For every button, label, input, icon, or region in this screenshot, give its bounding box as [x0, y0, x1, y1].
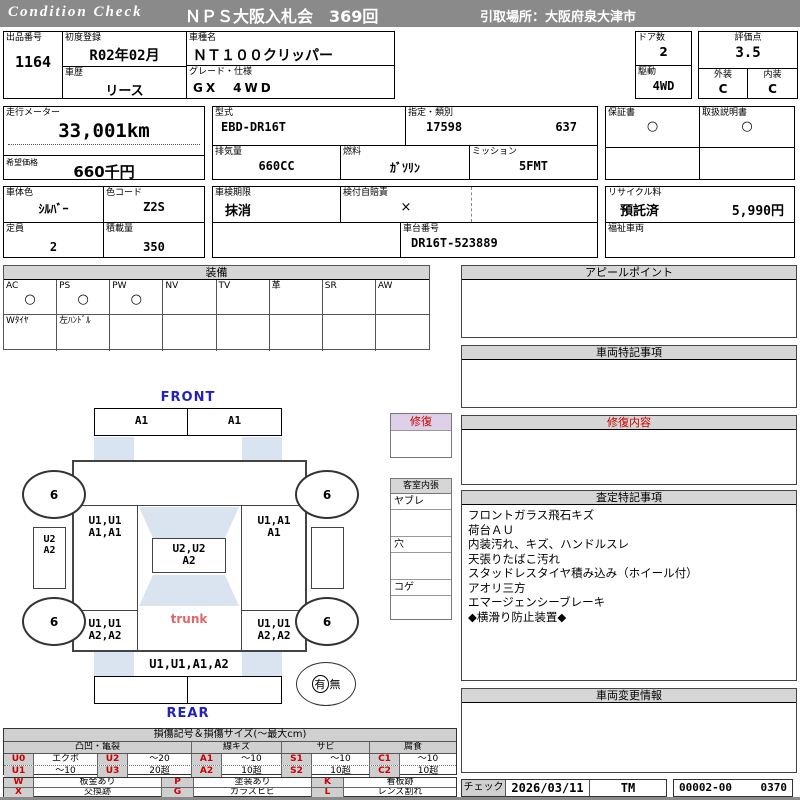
- class-values: 17598 637: [406, 120, 597, 134]
- right-front-panel-code-2: A1: [242, 527, 306, 539]
- field-lot-number: 出品番号 1164: [4, 32, 63, 98]
- equipment-extra-lhd: 左ﾊﾝﾄﾞﾙ: [57, 315, 110, 351]
- check-date-value: 2026/03/11: [506, 780, 590, 796]
- legend-desc-u2: ～20: [128, 754, 192, 765]
- engine-block: 型式 EBD-DR16T 指定・類別 17598 637 排気量 660CC 燃…: [212, 106, 598, 180]
- warranty-mark: ○: [606, 120, 699, 134]
- exterior-grade-label: 外装: [699, 69, 747, 82]
- equipment-label-leather: 革: [270, 280, 322, 293]
- chassis-empty-cell: [213, 222, 401, 257]
- assessment-item: エマージェンシーブレーキ: [468, 595, 790, 610]
- legend-title: 損傷記号＆損傷サイズ(～最大cm): [4, 729, 456, 742]
- chassis-label: 車台番号: [401, 223, 597, 236]
- equipment-mark-ac: ○: [4, 293, 56, 307]
- equipment-col-tv: TV: [217, 280, 270, 314]
- field-displacement: 排気量 660CC: [213, 145, 341, 179]
- doors-value: 2: [636, 45, 691, 59]
- wheel-rear-left: 6: [22, 597, 86, 646]
- legend-code-c2: C2: [370, 766, 400, 777]
- recycle-fee-value: 5,990円: [732, 200, 784, 219]
- recycle-values: 預託済 5,990円: [606, 200, 794, 219]
- legend-desc-a2: 10超: [222, 766, 282, 777]
- field-manual: 取扱説明書 ○: [700, 107, 794, 147]
- legend-desc-s2: 10超: [312, 766, 370, 777]
- equipment-label-nv: NV: [163, 280, 215, 293]
- rear-window-shade: [139, 575, 239, 606]
- trunk-label: trunk: [139, 612, 239, 626]
- first-registration-value: R02年02月: [63, 45, 186, 65]
- chassis-value: DR16T-523889: [401, 236, 597, 250]
- field-doors: ドア数 2: [636, 32, 691, 65]
- assessment-item: ◆横滑り防止装置◆: [468, 610, 790, 625]
- repair-flag-label: 修復: [391, 414, 451, 431]
- appeal-title: アピールポイント: [462, 266, 796, 280]
- payload-value: 350: [104, 240, 204, 254]
- roof-code-2: A2: [153, 555, 225, 567]
- repair-detail-section: 修復内容: [461, 415, 797, 485]
- equipment-extra-4: [163, 315, 216, 351]
- legend-code-u2: U2: [98, 754, 128, 765]
- legend-row-3: W 板金あり P 塗装あり K 看板跡: [4, 778, 456, 788]
- interior-grade-value: C: [748, 82, 797, 96]
- history-value: リース: [63, 80, 186, 99]
- rear-bumper-right-cell: [188, 677, 281, 703]
- inspector-value: TM: [590, 780, 666, 796]
- damage-legend-table: 損傷記号＆損傷サイズ(～最大cm) 凸凹・亀裂 線キズ サビ 腐食 U0 エクボ…: [3, 728, 457, 775]
- rear-bumper: [94, 676, 282, 704]
- odometer-price-block: 走行メーター 33,001km 希望価格 660千円: [3, 106, 205, 180]
- legend-desc-x: 交換跡: [34, 788, 162, 797]
- cabin-item-burn: コゲ: [391, 580, 451, 596]
- wheel-front-right: 6: [295, 470, 359, 519]
- assessment-item: フロントガラス飛石キズ: [468, 508, 790, 523]
- color-code-value: Z2S: [104, 200, 204, 214]
- field-insurance: 検付自賠責 ×: [341, 187, 471, 222]
- change-info-title: 車両変更情報: [462, 689, 796, 703]
- assessment-item: 内装汚れ、キズ、ハンドルスレ: [468, 537, 790, 552]
- score-block: 評価点 3.5 外装 C 内装 C: [698, 31, 798, 99]
- grade-label: グレード・仕様: [187, 66, 394, 79]
- field-transmission: ミッション 5FMT: [470, 145, 597, 179]
- legend-code-g: G: [162, 788, 194, 797]
- legend-desc-c1: ～10: [400, 754, 456, 765]
- left-door-panel: U2 A2: [33, 527, 66, 589]
- front-bumper: A1 A1: [94, 408, 282, 436]
- assessment-section: 査定特記事項 フロントガラス飛石キズ 荷台ＡＵ 内装汚れ、キズ、ハンドルスレ 天…: [461, 490, 797, 681]
- fuel-value: ｶﾞｿﾘﾝ: [341, 159, 469, 176]
- check-box: チェック 2026/03/11 TM: [461, 779, 667, 797]
- assessment-item: アオリ三方: [468, 581, 790, 596]
- field-price: 希望価格 660千円: [4, 155, 204, 179]
- legend-row-2: U1 ～10 U3 20超 A2 10超 S2 10超 C2 10超: [4, 766, 456, 777]
- cabin-lining-title: 客室内張: [391, 479, 451, 494]
- diagram-front-label: FRONT: [94, 390, 282, 405]
- legend-code-u3: U3: [98, 766, 128, 777]
- equipment-label-wtire: Wﾀｲﾔ: [4, 315, 56, 328]
- insurance-empty-cell: [471, 187, 597, 222]
- model-code-label: 型式: [213, 107, 405, 120]
- auction-title: ＮＰＳ大阪入札会 369回: [185, 3, 378, 27]
- history-label: 車歴: [63, 67, 186, 80]
- spare-absent-mark: 無: [330, 676, 341, 692]
- body-color-value: ｼﾙﾊﾞｰ: [4, 200, 103, 217]
- windshield-shade: [139, 507, 239, 538]
- capacity-value: 2: [4, 240, 103, 254]
- equipment-col-nv: NV: [163, 280, 216, 314]
- vehicle-notes-title: 車両特記事項: [462, 346, 796, 360]
- interior-grade-label: 内装: [748, 69, 797, 82]
- vehicle-id-block: 出品番号 1164 初度登録 R02年02月 車歴 リース 車種名 ＮＴ１００ク…: [3, 31, 395, 99]
- repair-detail-title: 修復内容: [462, 416, 796, 430]
- color-code-label: 色コード: [104, 187, 204, 200]
- inspection-chassis-block: 車検期限 抹消 検付自賠責 × 車台番号 DR16T-523889: [212, 186, 598, 258]
- legend-desc-c2: 10超: [400, 766, 456, 777]
- recycle-status-value: 預託済: [620, 200, 659, 219]
- equipment-row-2: Wﾀｲﾔ 左ﾊﾝﾄﾞﾙ: [4, 315, 429, 351]
- body-color-label: 車体色: [4, 187, 103, 200]
- cabin-lining-box: 客室内張 ヤブレ 穴 コゲ: [390, 478, 452, 620]
- assessment-title: 査定特記事項: [462, 491, 796, 505]
- field-model-code: 型式 EBD-DR16T: [213, 107, 406, 145]
- legend-desc-l: レンズ割れ: [344, 788, 456, 797]
- equipment-col-leather: 革: [270, 280, 323, 314]
- body-line-left-panel: [137, 505, 138, 652]
- equipment-label-tv: TV: [217, 280, 269, 293]
- legend-desc-u1: ～10: [34, 766, 98, 777]
- wheel-rear-right-value: 6: [323, 615, 331, 629]
- field-exterior-grade: 外装 C: [699, 69, 748, 98]
- welfare-label: 福祉車両: [606, 223, 794, 236]
- inspection-value: 抹消: [213, 200, 340, 219]
- warranty-empty-cell: [606, 147, 700, 179]
- pickup-location: 引取場所：大阪府泉大津市: [480, 6, 636, 25]
- drive-label: 駆動: [636, 66, 691, 79]
- legend-desc-k: 看板跡: [344, 778, 456, 787]
- vehicle-notes-section: 車両特記事項: [461, 345, 797, 408]
- legend-row-1: U0 エクボ U2 ～20 A1 ～10 S1 ～10 C1 ～10: [4, 754, 456, 766]
- manual-empty-cell: [700, 147, 794, 179]
- class-sub-value: 637: [555, 120, 577, 134]
- wheel-front-right-value: 6: [323, 488, 331, 502]
- diagram-rear-label: REAR: [94, 706, 282, 721]
- legend-desc-p: 塗装あり: [194, 778, 312, 787]
- equipment-table: 装備 AC○ PS○ PW○ NV TV 革 SR AW Wﾀｲﾔ 左ﾊﾝﾄﾞﾙ: [3, 265, 430, 350]
- field-recycle: リサイクル料 預託済 5,990円: [606, 187, 794, 222]
- equipment-extra-5: [217, 315, 270, 351]
- capacity-label: 定員: [4, 223, 103, 236]
- equipment-title: 装備: [4, 266, 429, 280]
- transmission-label: ミッション: [470, 146, 597, 159]
- repair-mark-legend-table: W 板金あり P 塗装あり K 看板跡 X 交換跡 G ガラスヒビ L レンズ割…: [3, 777, 457, 797]
- rear-bumper-left-cell: [95, 677, 188, 703]
- legend-code-p: P: [162, 778, 194, 787]
- model-name-value: ＮＴ１００クリッパー: [187, 45, 394, 65]
- price-label: 希望価格: [4, 156, 40, 169]
- score-value: 3.5: [699, 45, 797, 61]
- model-name-label: 車種名: [187, 32, 394, 45]
- assessment-item: 天張りたばこ汚れ: [468, 552, 790, 567]
- equipment-col-aw: AW: [376, 280, 429, 314]
- grade-value: GX 4WD: [187, 79, 394, 96]
- legend-group-corrosion: 腐食: [370, 742, 456, 753]
- legend-code-s1: S1: [282, 754, 312, 765]
- condition-check-sheet: Condition Check ＮＰＳ大阪入札会 369回 引取場所：大阪府泉大…: [0, 0, 800, 800]
- field-inspection: 車検期限 抹消: [213, 187, 341, 222]
- insurance-label: 検付自賠責: [341, 187, 471, 200]
- spare-present-mark: 有: [312, 675, 329, 693]
- equipment-col-ps: PS○: [57, 280, 110, 314]
- roof-panel: U2,U2 A2: [152, 538, 226, 573]
- field-warranty: 保証書 ○: [606, 107, 700, 147]
- wheel-front-left: 6: [22, 470, 86, 519]
- right-door-panel: [311, 527, 344, 589]
- change-info-section: 車両変更情報: [461, 688, 797, 773]
- class-no-value: 17598: [426, 120, 462, 134]
- field-first-registration: 初度登録 R02年02月: [63, 32, 187, 66]
- transmission-value: 5FMT: [470, 159, 597, 173]
- legend-desc-u3: 20超: [128, 766, 192, 777]
- legend-group-dent: 凸凹・亀裂: [4, 742, 192, 753]
- warranty-block: 保証書 ○ 取扱説明書 ○: [605, 106, 795, 180]
- front-bumper-right-code: A1: [188, 415, 281, 427]
- field-odometer: 走行メーター 33,001km: [4, 107, 204, 155]
- equipment-extra-7: [323, 315, 376, 351]
- legend-desc-u0: エクボ: [34, 754, 98, 765]
- equipment-label-aw: AW: [376, 280, 429, 293]
- equipment-label-sr: SR: [323, 280, 375, 293]
- legend-code-w: W: [4, 778, 34, 787]
- field-drive: 駆動 4WD: [636, 65, 691, 98]
- right-rear-panel-code-2: A2,A2: [242, 630, 306, 642]
- equipment-row-1: AC○ PS○ PW○ NV TV 革 SR AW: [4, 280, 429, 315]
- body-line-front-axle: [72, 505, 307, 506]
- payload-label: 積載量: [104, 223, 204, 236]
- legend-code-c1: C1: [370, 754, 400, 765]
- lot-number-value: 1164: [4, 53, 62, 71]
- left-front-panel-code-2: A1,A1: [73, 527, 137, 539]
- wheel-rear-right: 6: [295, 597, 359, 646]
- wheel-front-left-value: 6: [50, 488, 58, 502]
- legend-desc-w: 板金あり: [34, 778, 162, 787]
- legend-row-4: X 交換跡 G ガラスヒビ L レンズ割れ: [4, 788, 456, 797]
- seq-no-value: 0370: [761, 780, 788, 796]
- field-color-code: 色コード Z2S: [104, 187, 204, 222]
- front-cowl-right-shade: [242, 437, 282, 460]
- drive-value: 4WD: [636, 79, 691, 93]
- cabin-item-burn-area: [391, 596, 451, 624]
- brand-logo: Condition Check: [8, 4, 143, 21]
- inspection-label: 車検期限: [213, 187, 340, 200]
- appeal-section: アピールポイント: [461, 265, 797, 338]
- field-fuel: 燃料 ｶﾞｿﾘﾝ: [341, 145, 470, 179]
- check-label: チェック: [462, 780, 506, 796]
- legend-desc-a1: ～10: [222, 754, 282, 765]
- field-chassis: 車台番号 DR16T-523889: [401, 222, 597, 257]
- lot-number-label: 出品番号: [4, 32, 62, 45]
- legend-code-u0: U0: [4, 754, 34, 765]
- field-history: 車歴 リース: [63, 66, 187, 98]
- cabin-item-tear: ヤブレ: [391, 494, 451, 510]
- wheel-rear-left-value: 6: [50, 615, 58, 629]
- legend-desc-g: ガラスヒビ: [194, 788, 312, 797]
- left-door-code-2: A2: [34, 545, 65, 557]
- legend-desc-s1: ～10: [312, 754, 370, 765]
- legend-code-a1: A1: [192, 754, 222, 765]
- equipment-col-ac: AC○: [4, 280, 57, 314]
- field-grade: グレード・仕様 GX 4WD: [187, 66, 394, 98]
- color-capacity-block: 車体色 ｼﾙﾊﾞｰ 色コード Z2S 定員 2 積載量 350: [3, 186, 205, 258]
- assessment-item: 荷台ＡＵ: [468, 523, 790, 538]
- doc-no-value: 00002-00: [679, 780, 732, 796]
- equipment-extra-3: [110, 315, 163, 351]
- displacement-label: 排気量: [213, 146, 340, 159]
- legend-group-scratch: 線キズ: [192, 742, 282, 753]
- field-score: 評価点 3.5: [699, 32, 797, 69]
- repair-flag-box: 修復: [390, 413, 452, 458]
- cabin-item-hole-area: [391, 553, 451, 580]
- assessment-item: スタッドレスタイヤ積み込み（ホイール付）: [468, 566, 790, 581]
- equipment-label-lhd: 左ﾊﾝﾄﾞﾙ: [57, 315, 109, 328]
- equipment-col-pw: PW○: [110, 280, 163, 314]
- doc-number-box: 00002-00 0370: [673, 779, 793, 797]
- legend-code-u1: U1: [4, 766, 34, 777]
- legend-code-k: K: [312, 778, 344, 787]
- equipment-extra-6: [270, 315, 323, 351]
- field-payload: 積載量 350: [104, 222, 204, 257]
- odometer-label: 走行メーター: [4, 107, 204, 120]
- rear-corner-right-shade: [242, 652, 282, 676]
- recycle-block: リサイクル料 預託済 5,990円 福祉車両: [605, 186, 795, 258]
- assessment-list: フロントガラス飛石キズ 荷台ＡＵ 内装汚れ、キズ、ハンドルスレ 天張りたばこ汚れ…: [462, 505, 796, 627]
- first-registration-label: 初度登録: [63, 32, 186, 45]
- legend-group-rust: サビ: [282, 742, 370, 753]
- title-bar: Condition Check ＮＰＳ大阪入札会 369回 引取場所：大阪府泉大…: [0, 0, 800, 27]
- legend-group-row: 凸凹・亀裂 線キズ サビ 腐食: [4, 742, 456, 754]
- displacement-value: 660CC: [213, 159, 340, 173]
- class-label: 指定・類別: [406, 107, 597, 120]
- legend-code-s2: S2: [282, 766, 312, 777]
- front-cowl-left-shade: [94, 437, 134, 460]
- legend-code-l: L: [312, 788, 344, 797]
- legend-code-x: X: [4, 788, 34, 797]
- field-welfare: 福祉車両: [606, 222, 794, 257]
- doors-label: ドア数: [636, 32, 691, 45]
- doc-number-row: 00002-00 0370: [674, 780, 792, 796]
- equipment-extra-wtire: Wﾀｲﾔ: [4, 315, 57, 351]
- cabin-item-hole: 穴: [391, 537, 451, 553]
- front-bumper-left-code: A1: [95, 415, 188, 427]
- equipment-mark-ps: ○: [57, 293, 109, 307]
- front-bumper-right-cell: A1: [188, 409, 281, 435]
- score-label: 評価点: [699, 32, 797, 45]
- field-model-name: 車種名 ＮＴ１００クリッパー: [187, 32, 394, 66]
- odometer-value: 33,001km: [8, 120, 200, 145]
- recycle-label: リサイクル料: [606, 187, 794, 200]
- model-code-value: EBD-DR16T: [213, 120, 405, 134]
- spare-tire-indicator: 有 無: [296, 662, 356, 706]
- exterior-grade-value: C: [699, 82, 747, 96]
- manual-mark: ○: [700, 120, 794, 134]
- legend-code-a2: A2: [192, 766, 222, 777]
- rear-corner-left-shade: [94, 652, 134, 676]
- equipment-mark-pw: ○: [110, 293, 162, 307]
- front-bumper-left-cell: A1: [95, 409, 188, 435]
- field-interior-grade: 内装 C: [748, 69, 797, 98]
- insurance-mark: ×: [341, 200, 471, 215]
- rear-panel-code: U1,U1,A1,A2: [134, 658, 244, 670]
- field-capacity: 定員 2: [4, 222, 104, 257]
- doors-drive-block: ドア数 2 駆動 4WD: [635, 31, 692, 99]
- fuel-label: 燃料: [341, 146, 469, 159]
- equipment-extra-8: [376, 315, 429, 351]
- equipment-col-sr: SR: [323, 280, 376, 314]
- cabin-item-tear-area: [391, 510, 451, 537]
- field-body-color: 車体色 ｼﾙﾊﾞｰ: [4, 187, 104, 222]
- field-class: 指定・類別 17598 637: [406, 107, 597, 145]
